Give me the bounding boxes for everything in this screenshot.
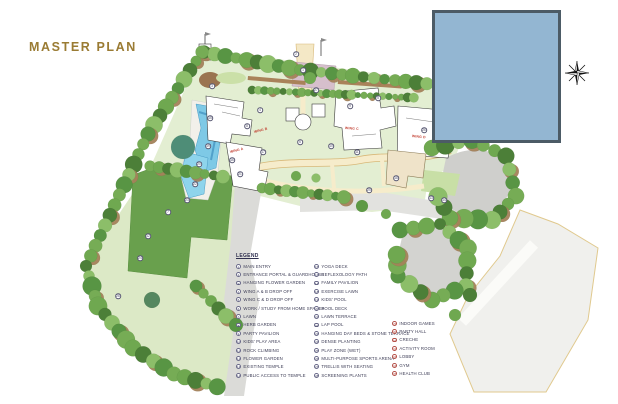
legend-item-label: MULTI-PURPOSE SPORTS ARENA [321, 356, 394, 361]
legend-item: 8HERB GARDEN [236, 321, 314, 329]
legend-item: 3HANGING FLOWER GARDEN [236, 279, 314, 287]
legend-item: 4WING A & B DROP OFF [236, 287, 314, 295]
legend-item-label: PARTY HALL [399, 329, 426, 334]
legend-item: 30PARTY HALL [392, 327, 472, 335]
legend-item-label: INDOOR GAMES [399, 321, 434, 326]
legend-item: 18EXERCISE LAWN [314, 287, 392, 295]
blue-inset-box [432, 10, 561, 143]
legend-item-label: PUBLIC ACCESS TO TEMPLE [243, 373, 305, 378]
legend-item-label: SCREENING PLANTS [321, 373, 366, 378]
legend-item: 14PUBLIC ACCESS TO TEMPLE [236, 371, 314, 379]
legend-item-label: HANGING FLOWER GARDEN [243, 280, 305, 285]
legend-item: 26MULTI-PURPOSE SPORTS ARENA [314, 354, 392, 362]
legend-item: 1MAIN ENTRY [236, 262, 314, 270]
legend-item: 16REFLEXOLOGY PATH [314, 270, 392, 278]
legend-item-number: 2 [236, 272, 241, 277]
legend-item-label: DENSE PLANTING [321, 339, 360, 344]
legend-item-number: 6 [236, 306, 241, 311]
legend-item: 31CRECHE [392, 336, 472, 344]
legend-item-label: WING A & B DROP OFF [243, 289, 292, 294]
legend-item-label: LAWN TERRACE [321, 314, 356, 319]
legend-item-number: 16 [314, 272, 319, 277]
legend-item-label: PARTY PAVILION [243, 331, 279, 336]
flag-icon [321, 38, 327, 42]
legend-item-label: KIDS' PLAY AREA [243, 339, 280, 344]
legend-item-label: TRELLIS WITH SEATING [321, 364, 373, 369]
legend-item-label: LOBBY [399, 354, 414, 359]
legend-item-number: 4 [236, 289, 241, 294]
legend-item-number: 35 [392, 371, 397, 376]
legend-item-label: ROCK CLIMBING [243, 348, 279, 353]
legend-item: 20POOL DECK [314, 304, 392, 312]
legend-item-label: LAWN [243, 314, 256, 319]
legend-item: 32ACTIVITY ROOM [392, 344, 472, 352]
legend-item-label: ENTRANCE PORTAL & GUARDHOUSE [243, 272, 324, 277]
legend-item-label: HERB GARDEN [243, 322, 276, 327]
legend-column-3: 29INDOOR GAMES30PARTY HALL31CRECHE32ACTI… [392, 319, 472, 378]
legend-item-number: 32 [392, 346, 397, 351]
legend-item-label: WORK / STUDY FROM HOME SPACES [243, 306, 324, 311]
legend-item-number: 13 [236, 364, 241, 369]
legend-item-number: 26 [314, 356, 319, 361]
central-plaza [295, 114, 311, 130]
legend-item-number: 9 [236, 331, 241, 336]
legend-item-label: WING C & D DROP OFF [243, 297, 293, 302]
legend-item: 17FAMILY PAVILION [314, 279, 392, 287]
legend-item: 7LAWN [236, 312, 314, 320]
legend-item-label: EXERCISE LAWN [321, 289, 358, 294]
legend-item: 13EXISTING TEMPLE [236, 363, 314, 371]
legend-item-number: 18 [314, 289, 319, 294]
legend-item-number: 3 [236, 281, 241, 286]
legend-item-number: 11 [236, 348, 241, 353]
legend-item-number: 33 [392, 354, 397, 359]
legend-item: 6WORK / STUDY FROM HOME SPACES [236, 304, 314, 312]
legend-item: 34GYM [392, 361, 472, 369]
legend-item-label: FLOWER GARDEN [243, 356, 283, 361]
legend-item-number: 5 [236, 297, 241, 302]
legend-item-label: FAMILY PAVILION [321, 280, 358, 285]
legend-item-label: EXISTING TEMPLE [243, 364, 283, 369]
legend-item: 11ROCK CLIMBING [236, 346, 314, 354]
legend-item: 12FLOWER GARDEN [236, 354, 314, 362]
legend-item: 25PLAY ZONE (WET) [314, 346, 392, 354]
legend-item-number: 15 [314, 264, 319, 269]
legend: LEGEND 1MAIN ENTRY2ENTRANCE PORTAL & GUA… [236, 253, 472, 379]
legend-item-number: 30 [392, 329, 397, 334]
legend-item-label: MAIN ENTRY [243, 264, 271, 269]
legend-item: 33LOBBY [392, 353, 472, 361]
legend-item-number: 25 [314, 348, 319, 353]
legend-column-2: 15YOGA DECK16REFLEXOLOGY PATH17FAMILY PA… [314, 262, 392, 379]
legend-item: 9PARTY PAVILION [236, 329, 314, 337]
legend-item-label: GYM [399, 363, 409, 368]
legend-item-label: KIDS' POOL [321, 297, 346, 302]
legend-item-label: YOGA DECK [321, 264, 347, 269]
legend-item-number: 28 [314, 373, 319, 378]
legend-item-number: 31 [392, 338, 397, 343]
legend-item: 27TRELLIS WITH SEATING [314, 363, 392, 371]
legend-item-label: HEALTH CLUB [399, 371, 430, 376]
legend-item: 2ENTRANCE PORTAL & GUARDHOUSE [236, 270, 314, 278]
flag-icon [205, 32, 211, 36]
legend-item: 10KIDS' PLAY AREA [236, 338, 314, 346]
legend-item-label: ACTIVITY ROOM [399, 346, 434, 351]
legend-item: 35HEALTH CLUB [392, 369, 472, 377]
legend-item-number: 8 [236, 323, 241, 328]
legend-item-number: 12 [236, 356, 241, 361]
legend-item-number: 20 [314, 306, 319, 311]
legend-item-number: 27 [314, 364, 319, 369]
master-plan-page: MASTER PLAN [0, 0, 618, 404]
legend-item-number: 24 [314, 339, 319, 344]
legend-item-number: 17 [314, 281, 319, 286]
legend-item: 15YOGA DECK [314, 262, 392, 270]
legend-column-1: 1MAIN ENTRY2ENTRANCE PORTAL & GUARDHOUSE… [236, 262, 314, 379]
legend-item: 29INDOOR GAMES [392, 319, 472, 327]
legend-item-number: 19 [314, 297, 319, 302]
legend-item-label: PLAY ZONE (WET) [321, 348, 360, 353]
legend-item-number: 21 [314, 314, 319, 319]
legend-item-number: 1 [236, 264, 241, 269]
legend-item: 19KIDS' POOL [314, 296, 392, 304]
legend-item-number: 34 [392, 363, 397, 368]
legend-item: 21LAWN TERRACE [314, 312, 392, 320]
legend-item-label: LAP POOL [321, 322, 343, 327]
legend-item-number: 14 [236, 373, 241, 378]
legend-item-number: 22 [314, 323, 319, 328]
legend-item: 24DENSE PLANTING [314, 338, 392, 346]
legend-item-number: 7 [236, 314, 241, 319]
legend-columns: 1MAIN ENTRY2ENTRANCE PORTAL & GUARDHOUSE… [236, 262, 472, 379]
legend-title: LEGEND [236, 253, 472, 259]
legend-item-label: CRECHE [399, 337, 418, 342]
legend-item: 23HANGING DAY BEDS & STONE TERRACE [314, 329, 392, 337]
legend-item-number: 23 [314, 331, 319, 336]
legend-item-label: REFLEXOLOGY PATH [321, 272, 367, 277]
legend-item: 22LAP POOL [314, 321, 392, 329]
legend-item-number: 10 [236, 339, 241, 344]
legend-item: 5WING C & D DROP OFF [236, 296, 314, 304]
compass-north-icon [563, 59, 591, 87]
legend-item: 28SCREENING PLANTS [314, 371, 392, 379]
legend-item-label: POOL DECK [321, 306, 347, 311]
legend-item-number: 29 [392, 321, 397, 326]
